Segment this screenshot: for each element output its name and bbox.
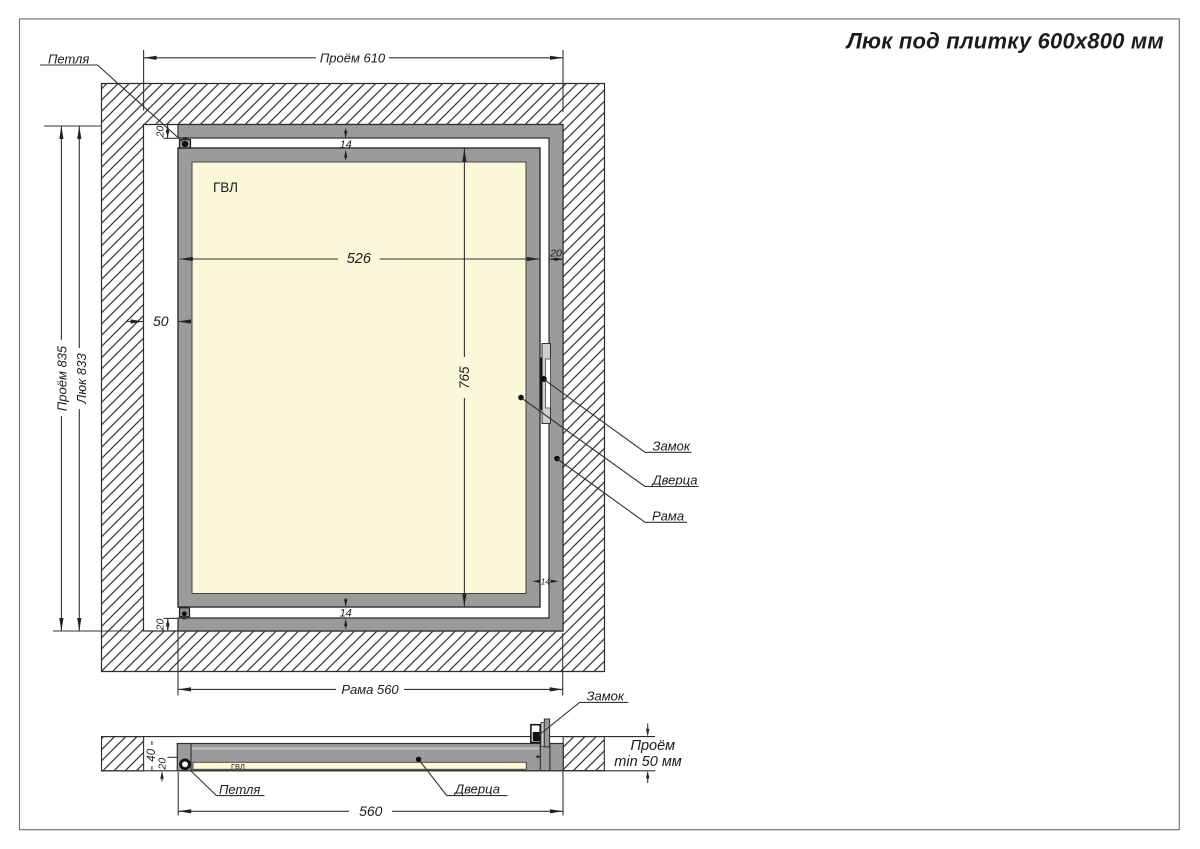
svg-text:20: 20 [549,248,562,260]
svg-text:Проём 835: Проём 835 [55,345,70,411]
svg-text:765: 765 [457,366,472,389]
svg-text:Петля: Петля [219,782,260,797]
svg-text:Петля: Петля [48,51,89,66]
svg-text:Проём 610: Проём 610 [320,51,386,66]
svg-text:Дверца: Дверца [651,473,698,488]
svg-text:50: 50 [153,313,169,329]
svg-text:Люк 833: Люк 833 [74,353,89,405]
svg-text:ГВЛ: ГВЛ [213,180,238,195]
svg-text:14: 14 [340,607,352,619]
svg-text:Люк под плитку 600х800 мм: Люк под плитку 600х800 мм [845,29,1164,54]
svg-text:20: 20 [155,126,167,139]
svg-text:526: 526 [347,251,372,267]
svg-text:20: 20 [155,619,167,632]
svg-text:ГВЛ: ГВЛ [231,762,245,771]
svg-text:14: 14 [541,576,551,586]
svg-text:Проём: Проём [630,738,675,754]
svg-text:Замок: Замок [653,438,691,453]
svg-text:min 50 мм: min 50 мм [614,754,681,770]
svg-text:Рама: Рама [652,509,684,524]
svg-text:14: 14 [340,139,352,151]
svg-text:Замок: Замок [587,688,625,703]
svg-text:Дверца: Дверца [453,782,500,797]
svg-text:Рама 560: Рама 560 [341,682,399,697]
svg-text:20: 20 [157,758,169,771]
svg-text:560: 560 [359,803,383,819]
